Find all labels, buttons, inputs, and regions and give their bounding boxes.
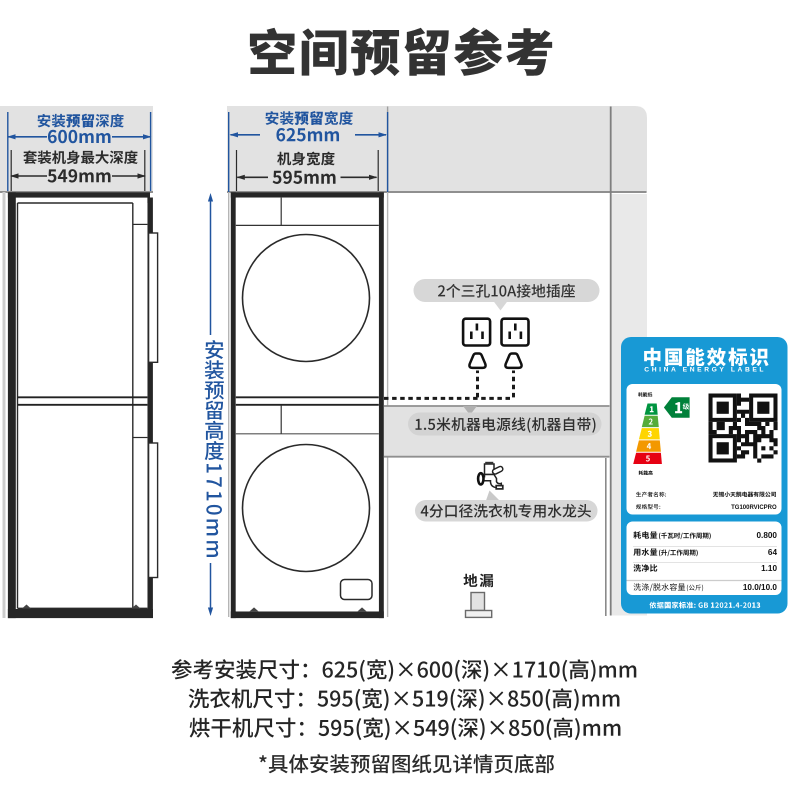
- svg-text:10.0/10.0: 10.0/10.0: [743, 583, 778, 592]
- svg-text:0.800: 0.800: [757, 531, 778, 540]
- svg-text:1.10: 1.10: [761, 564, 777, 573]
- svg-text:TG100RVICPRO: TG100RVICPRO: [731, 505, 777, 511]
- svg-text:CHINA ENERGY LABEL: CHINA ENERGY LABEL: [644, 367, 766, 374]
- svg-text:64: 64: [768, 548, 778, 557]
